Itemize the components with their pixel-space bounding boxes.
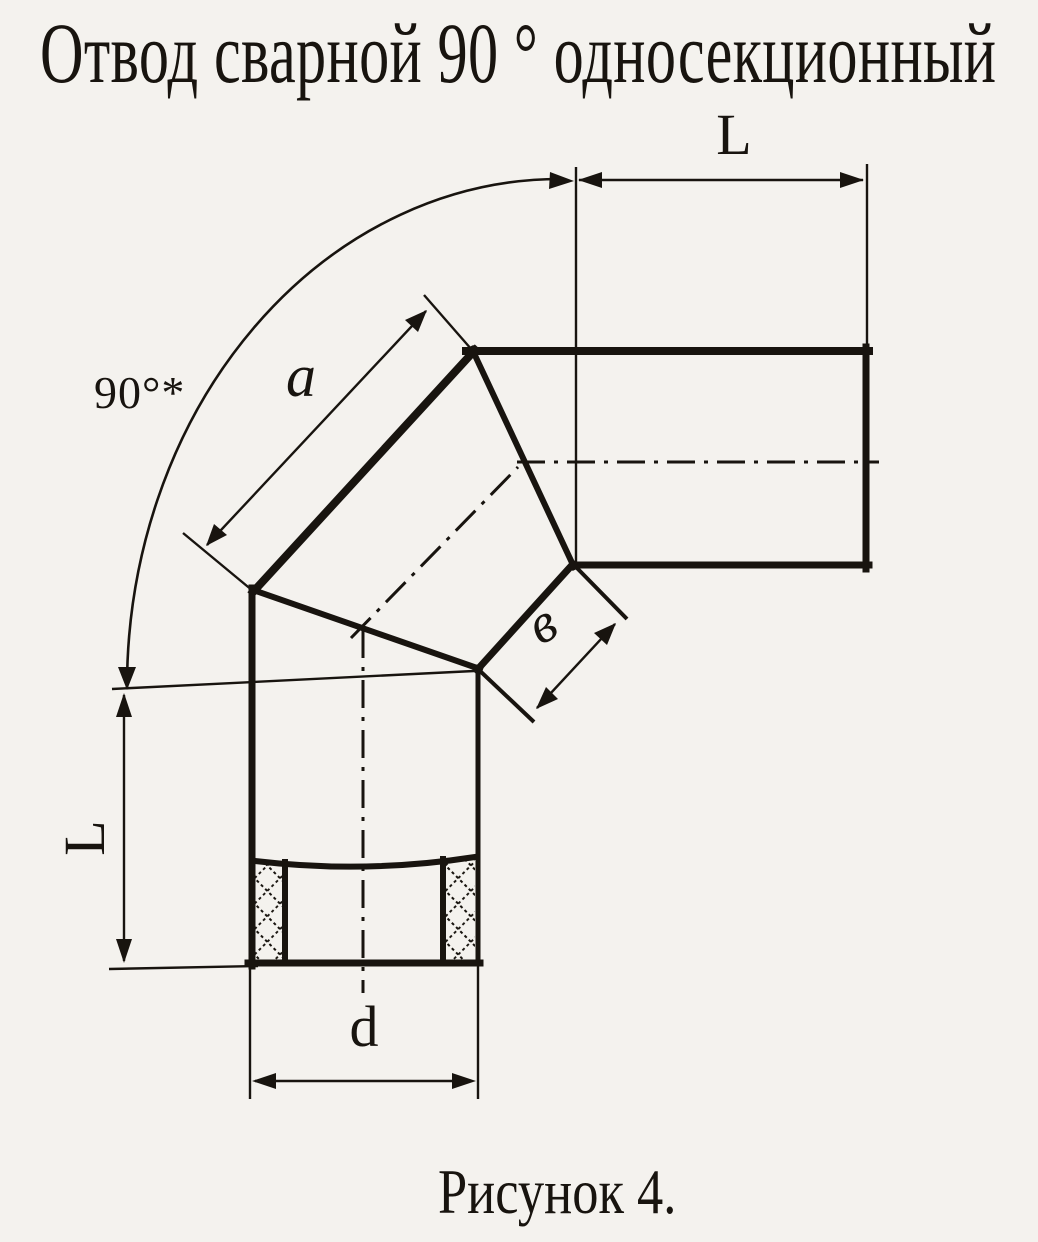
extension-tick-a-lower [183, 533, 253, 591]
weld-seam-right [472, 349, 574, 567]
extension-line-v-upper [575, 566, 627, 619]
hatch-left-block [254, 860, 282, 961]
extension-line-v-lower [479, 670, 534, 722]
pipe-outline [248, 347, 869, 966]
arrow-L-left-up [116, 693, 132, 717]
dimension-lines [109, 164, 867, 1099]
dim-label-angle: 90°* [94, 370, 185, 416]
extension-line-vpipe-bottom [109, 966, 258, 969]
arrow-arc-bottom [118, 667, 136, 690]
dim-label-L-top: L [702, 106, 766, 164]
extension-tick-a-upper [424, 295, 472, 350]
arrow-L-top-left [578, 172, 602, 188]
diagonal-axis-centerline [351, 467, 518, 638]
drawing-title: Отвод сварной 90 ° односекционный [40, 10, 996, 96]
figure-caption: Рисунок 4. [438, 1160, 676, 1224]
arrow-L-top-right [840, 172, 864, 188]
arrow-d-left [252, 1073, 276, 1089]
dim-label-d: d [342, 998, 386, 1056]
arrow-L-left-down [116, 939, 132, 963]
hatch-right-block [446, 858, 475, 961]
dim-label-a: a [286, 346, 316, 406]
scanned-drawing-page: Отвод сварной 90 ° односекционный L 90°*… [0, 0, 1038, 1242]
elbow-drawing-canvas [0, 0, 1038, 1242]
arrow-arc-top [549, 172, 574, 189]
angle-arc-90 [127, 179, 560, 687]
extension-line-vpipe-top [112, 671, 474, 689]
arrow-d-right [452, 1073, 476, 1089]
weld-seam-left [253, 590, 480, 669]
centerlines [351, 462, 879, 993]
dim-label-L-left: L [56, 806, 120, 870]
arrowheads [116, 172, 864, 1089]
